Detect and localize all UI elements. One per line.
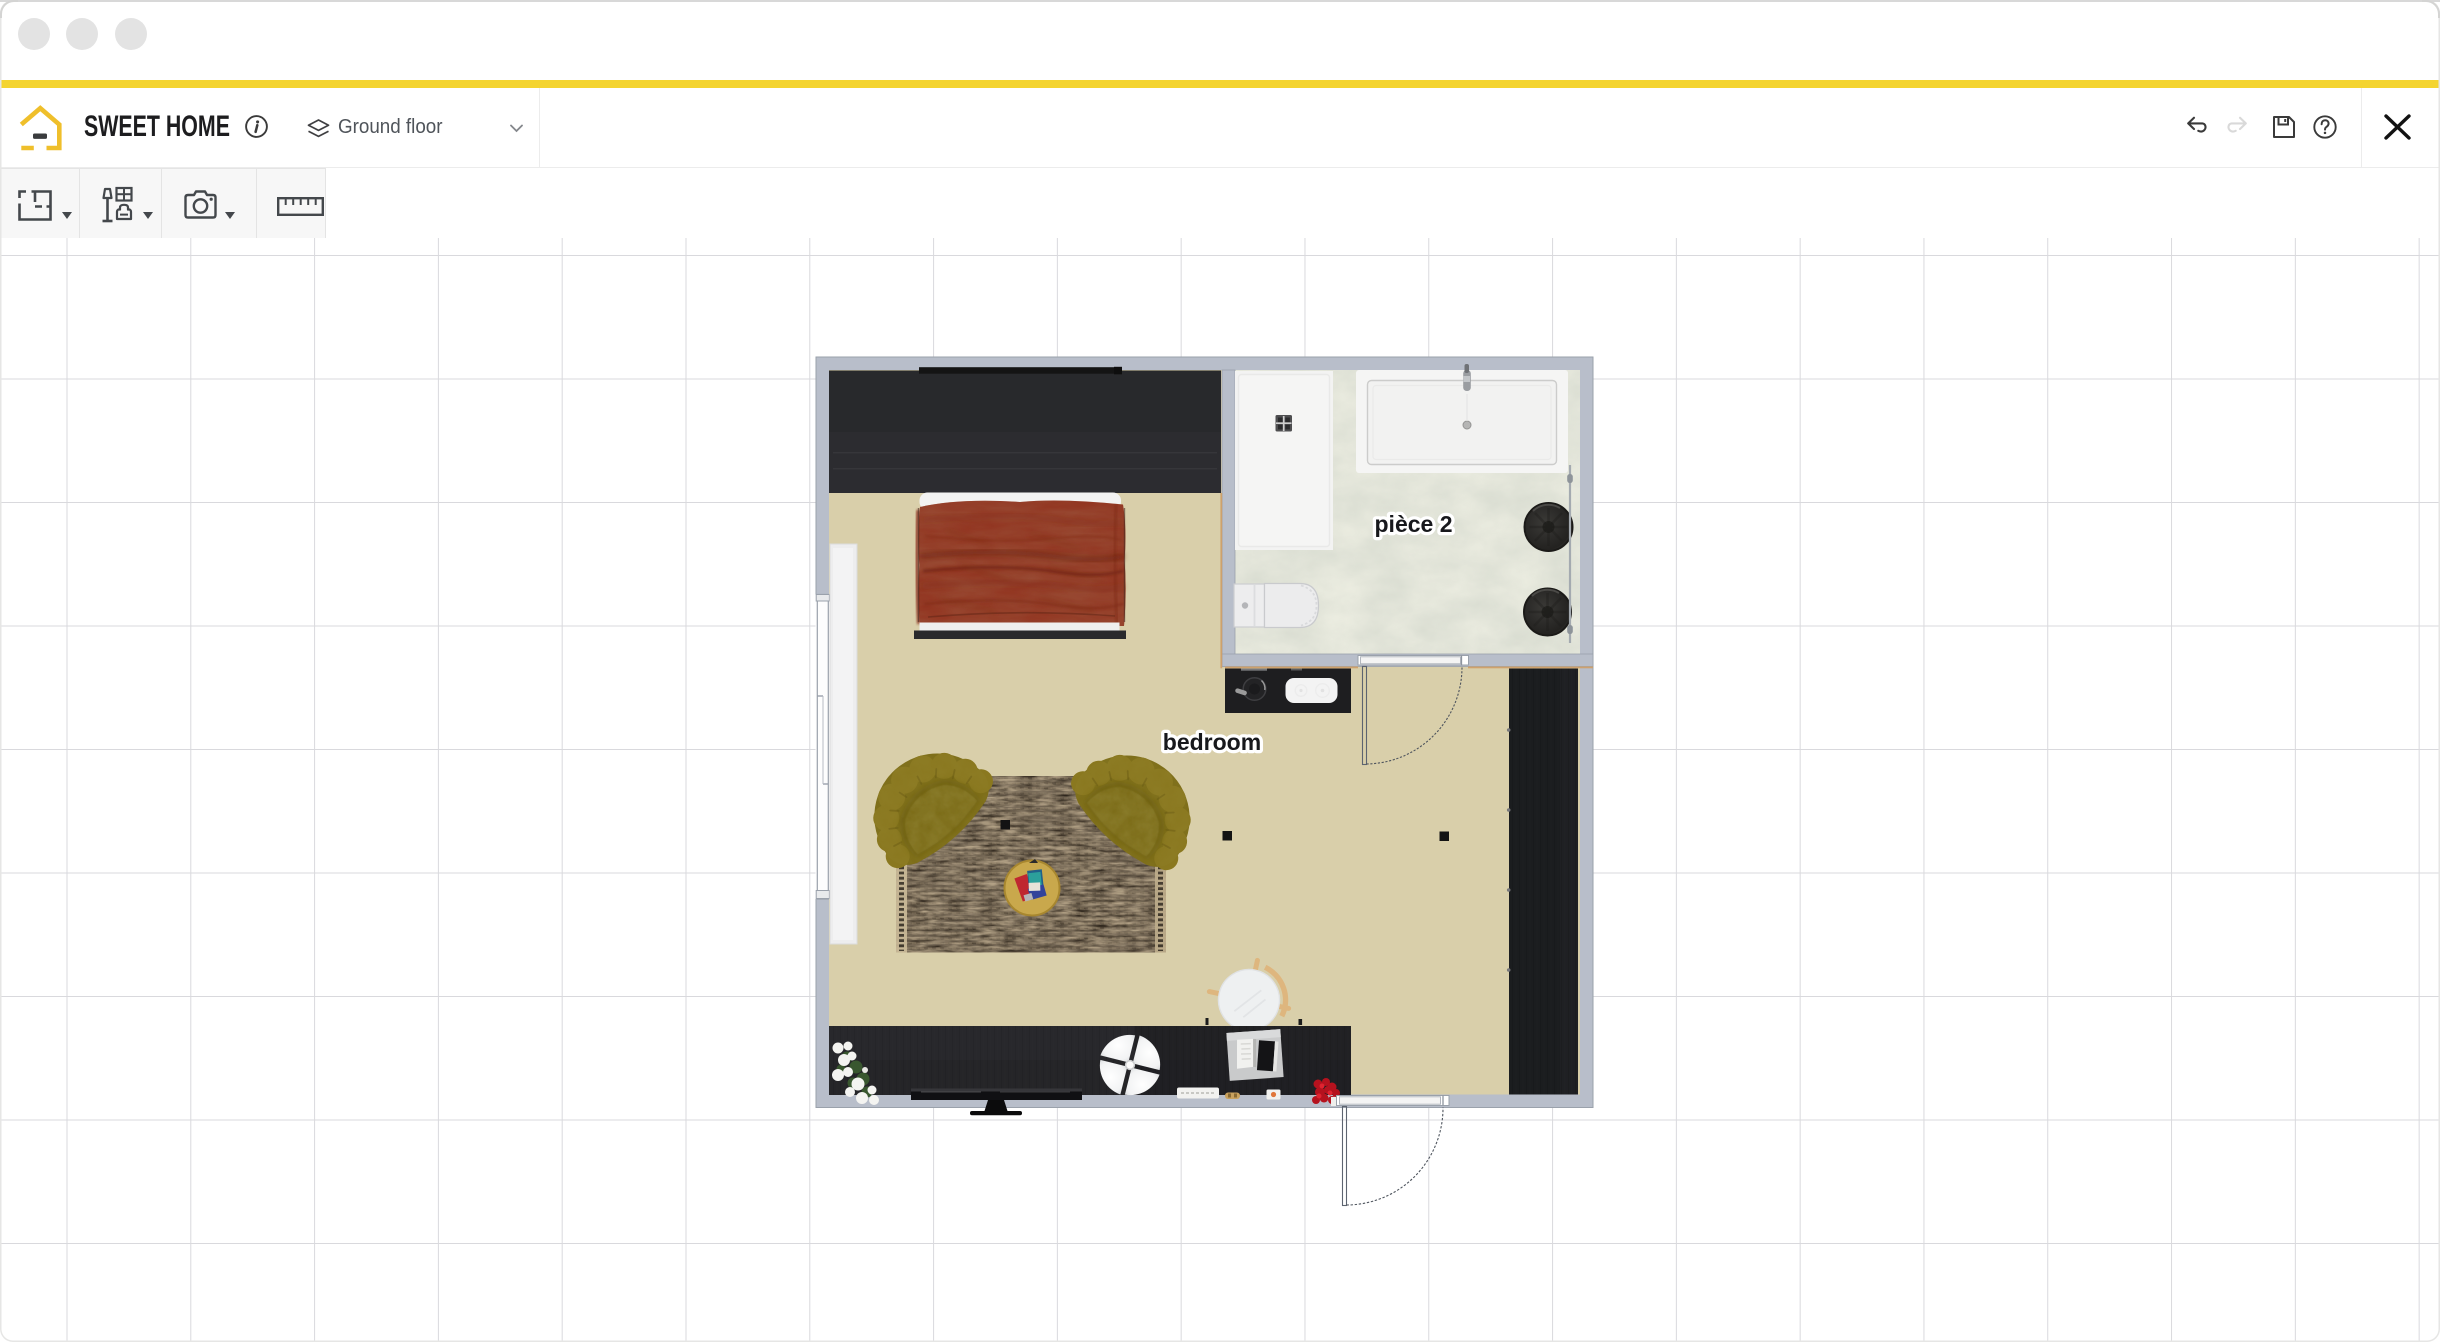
svg-text:pièce 2: pièce 2	[1375, 511, 1453, 537]
svg-text:bedroom: bedroom	[1163, 729, 1261, 755]
